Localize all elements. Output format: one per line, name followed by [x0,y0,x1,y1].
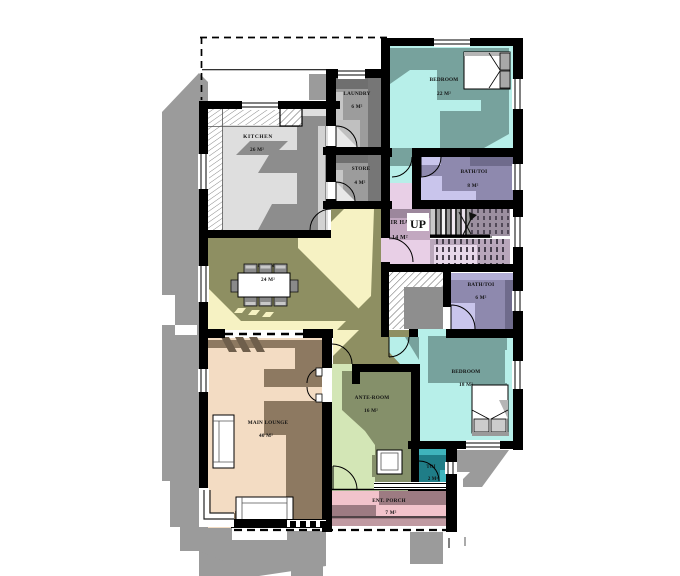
svg-text:22 M²: 22 M² [437,91,451,97]
svg-text:UP: UP [410,217,426,231]
svg-text:16 M²: 16 M² [364,408,378,414]
svg-text:24 M²: 24 M² [261,277,275,283]
svg-text:8 M²: 8 M² [467,183,478,189]
svg-text:BATH/TOI: BATH/TOI [468,282,495,288]
svg-text:4 M²: 4 M² [354,180,365,186]
svg-text:STORE: STORE [352,166,371,172]
svg-text:BATH/TOI: BATH/TOI [461,169,488,175]
svg-text:LAUNDRY: LAUNDRY [343,91,370,97]
svg-text:7 M²: 7 M² [385,510,396,516]
svg-text:KITCHEN: KITCHEN [243,134,273,140]
svg-text:6 M²: 6 M² [351,104,362,110]
svg-text:40 M²: 40 M² [259,433,273,439]
svg-text:18 M²: 18 M² [459,382,473,388]
svg-text:BEDROOM: BEDROOM [452,369,481,375]
svg-text:MAIN LOUNGE: MAIN LOUNGE [248,420,289,426]
svg-text:26 M²: 26 M² [250,147,264,153]
svg-text:6 M²: 6 M² [475,295,486,301]
svg-text:ENT. PORCH: ENT. PORCH [372,498,406,504]
svg-text:BEDROOM: BEDROOM [430,77,459,83]
svg-text:ANTE-ROOM: ANTE-ROOM [355,395,390,401]
svg-text:2 M²: 2 M² [428,476,439,482]
